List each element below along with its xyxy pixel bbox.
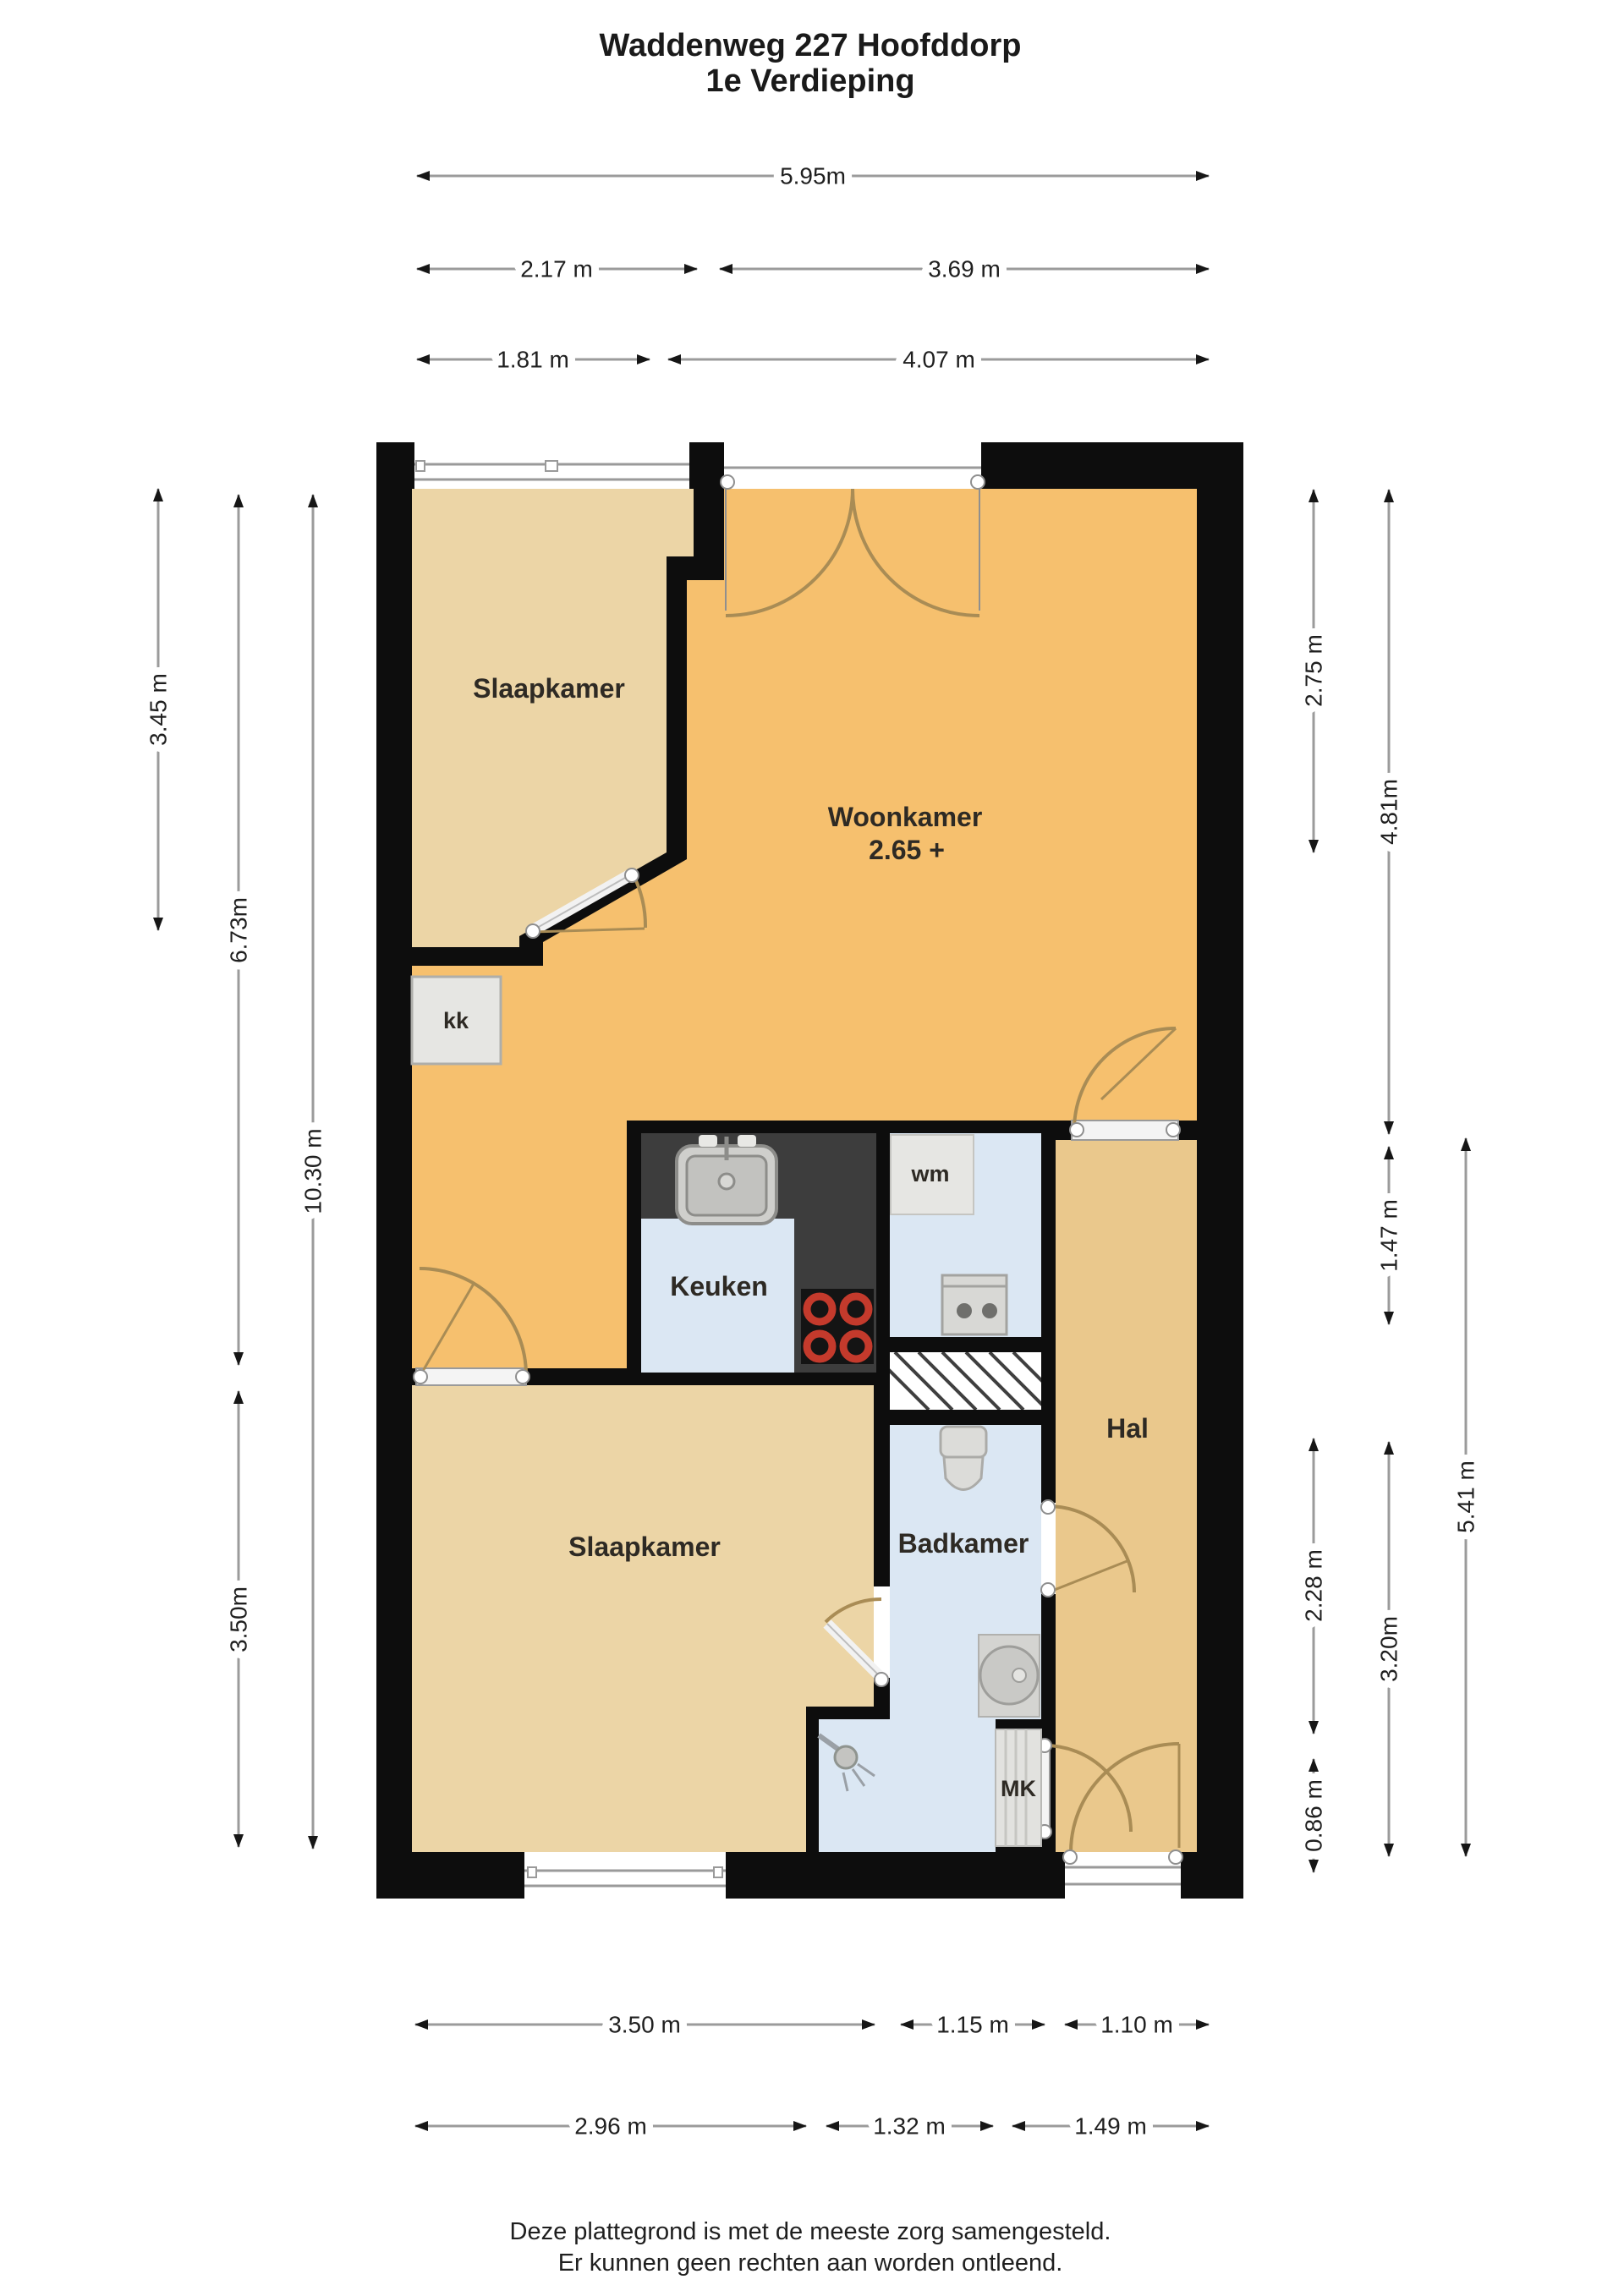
dimensions-left: 3.45 m 6.73m 3.50m 10.30 m (145, 489, 326, 1849)
page-title-address: Waddenweg 227 Hoofddorp (600, 28, 1022, 63)
dim-bottom-132: 1.32 m (873, 2113, 946, 2140)
dim-right-228: 2.28 m (1301, 1549, 1327, 1622)
label-keuken: Keuken (670, 1271, 768, 1301)
window-bottom-left (524, 1852, 726, 1899)
dimensions-top: 5.95m 2.17 m 3.69 m 1.81 m 4.07 m (417, 163, 1209, 373)
label-woonkamer-height: 2.65 + (869, 835, 945, 865)
dim-top-right-inner: 4.07 m (903, 347, 975, 373)
window-top-left (414, 442, 689, 489)
dim-bottom-110: 1.10 m (1100, 2012, 1173, 2038)
sink-icon (677, 1135, 776, 1224)
dim-top-left-inner: 1.81 m (497, 347, 569, 373)
toilet-icon (941, 1427, 986, 1490)
footer-disclaimer-line1: Deze plattegrond is met de meeste zorg s… (510, 2218, 1111, 2245)
label-mk: MK (1001, 1776, 1036, 1801)
label-wm: wm (910, 1161, 949, 1186)
dim-right-147: 1.47 m (1376, 1199, 1402, 1272)
dimensions-bottom: 3.50 m 1.15 m 1.10 m 2.96 m 1.32 m 1.49 … (415, 2012, 1209, 2140)
label-hal: Hal (1106, 1413, 1149, 1444)
dim-bottom-350: 3.50 m (608, 2012, 681, 2038)
dim-bottom-296: 2.96 m (574, 2113, 647, 2140)
dim-right-275: 2.75 m (1301, 634, 1327, 707)
label-slaapkamer-bottom: Slaapkamer (568, 1532, 721, 1562)
washbasin-icon (979, 1635, 1040, 1717)
stove-icon (801, 1289, 874, 1364)
dim-top-left-section: 2.17 m (520, 256, 593, 282)
dimensions-right: 2.75 m 4.81m 1.47 m 2.28 m 0.86 m 3.20m … (1301, 490, 1479, 1872)
dim-right-086: 0.86 m (1301, 1779, 1327, 1852)
stairs-hatch-icon (871, 1352, 1071, 1410)
dim-right-541: 5.41 m (1453, 1460, 1479, 1533)
dim-left-total: 10.30 m (300, 1128, 326, 1214)
floorplan-canvas: Waddenweg 227 Hoofddorp 1e Verdieping (0, 0, 1624, 2296)
floorplan-page: Waddenweg 227 Hoofddorp 1e Verdieping (0, 0, 1624, 2296)
room-slaapkamer-bottom (412, 1385, 874, 1852)
page-title-floor: 1e Verdieping (705, 63, 914, 99)
dim-bottom-149: 1.49 m (1074, 2113, 1147, 2140)
label-woonkamer: Woonkamer (828, 802, 983, 832)
dim-top-right-section: 3.69 m (928, 256, 1001, 282)
dim-left-bedroom: 3.45 m (145, 673, 172, 746)
dim-left-lower: 3.50m (226, 1586, 252, 1652)
footer-disclaimer-line2: Er kunnen geen rechten aan worden ontlee… (558, 2249, 1063, 2277)
washing-machine-icon (942, 1275, 1007, 1334)
dim-right-481: 4.81m (1376, 779, 1402, 845)
dim-right-320: 3.20m (1376, 1616, 1402, 1682)
dim-top-total: 5.95m (780, 163, 846, 189)
label-kk: kk (443, 1008, 469, 1033)
dim-left-upper: 6.73m (226, 897, 252, 963)
label-badkamer: Badkamer (898, 1528, 1029, 1559)
dim-bottom-115: 1.15 m (936, 2012, 1009, 2038)
label-slaapkamer-top: Slaapkamer (473, 673, 625, 704)
